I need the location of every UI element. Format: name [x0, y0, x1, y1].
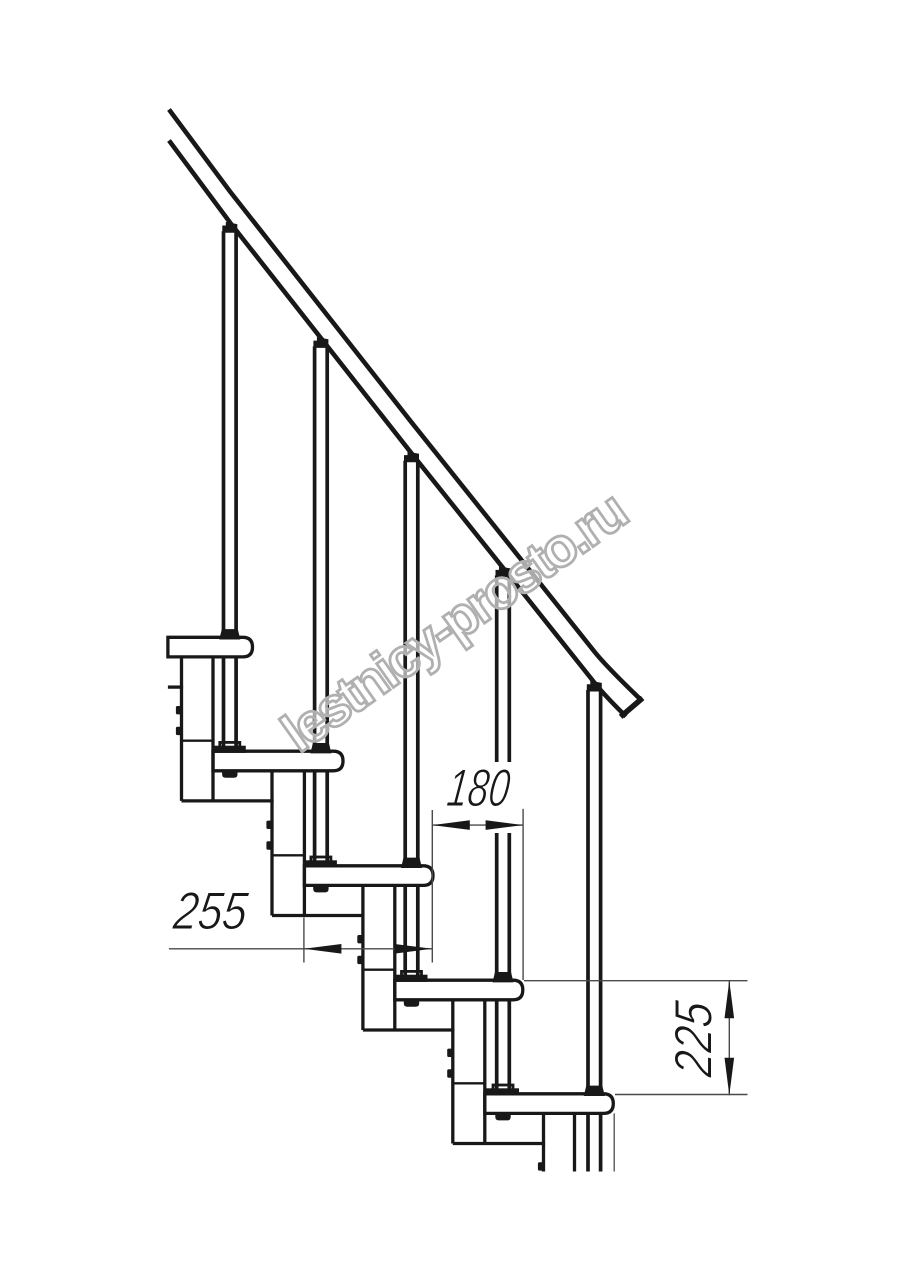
svg-text:225: 225 — [665, 998, 724, 1080]
svg-text:255: 255 — [170, 882, 251, 941]
svg-text:180: 180 — [444, 759, 514, 818]
